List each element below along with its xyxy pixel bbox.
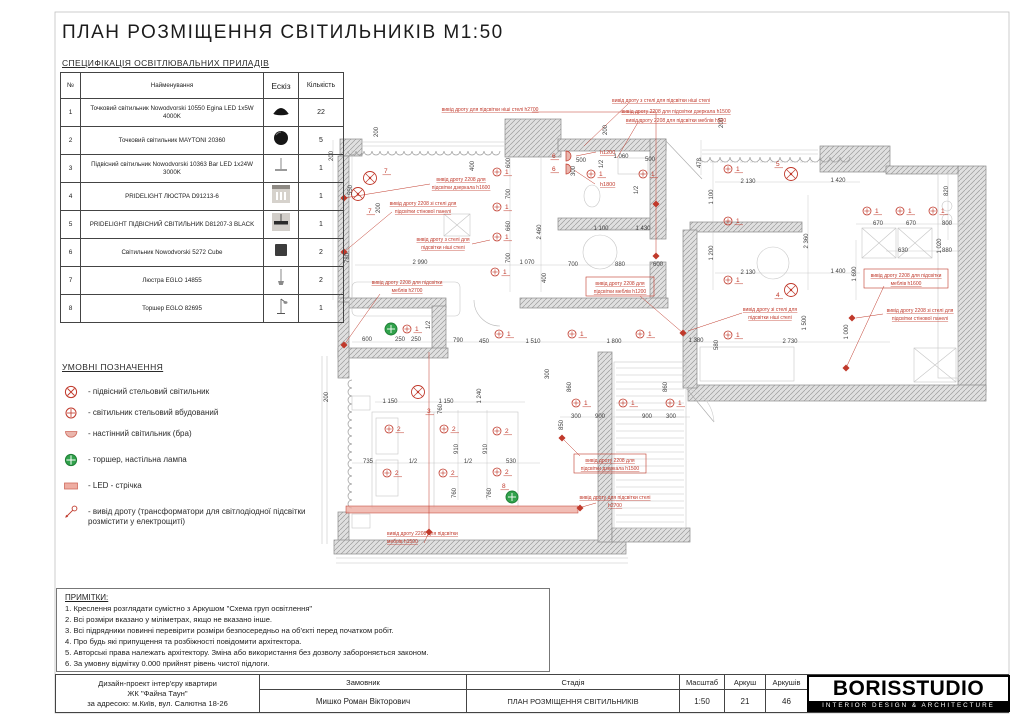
spec-row: 8Торшер EGLO 826951	[61, 295, 344, 323]
svg-text:вивід дроту з стелі для підсві: вивід дроту з стелі для підсвітки ніші с…	[612, 98, 710, 104]
svg-text:760: 760	[487, 487, 493, 498]
svg-text:2 360: 2 360	[804, 233, 810, 249]
svg-text:8: 8	[502, 483, 506, 490]
svg-text:2: 2	[452, 426, 456, 433]
recessed-spot-symbol: 1	[896, 207, 915, 215]
svg-text:1/2: 1/2	[599, 159, 605, 168]
spec-row: 7Люстра EGLO 148552	[61, 267, 344, 295]
svg-text:300: 300	[571, 165, 577, 176]
svg-text:2: 2	[397, 426, 401, 433]
svg-text:вивід дроту для підсвітки ніші: вивід дроту для підсвітки ніші стелі h27…	[442, 107, 539, 113]
notes-box: ПРИМІТКИ: 1. Креслення розглядати суміст…	[56, 588, 550, 672]
spec-table-body: 1Точковий світильник Nowodvorski 10550 E…	[61, 99, 344, 323]
svg-text:1 100: 1 100	[593, 226, 609, 232]
legend: УМОВНІ ПОЗНАЧЕННЯ - підвісний стельовий …	[62, 362, 312, 372]
svg-text:1: 1	[631, 400, 635, 407]
svg-text:660: 660	[506, 220, 512, 231]
spec-table: №НайменуванняЕскізКількість 1Точковий св…	[60, 72, 344, 323]
svg-text:300: 300	[571, 414, 582, 420]
svg-text:1: 1	[648, 331, 652, 338]
svg-text:1 420: 1 420	[830, 178, 846, 184]
spec-row-num: 1	[61, 99, 81, 127]
recessed-spot-symbol: 1	[403, 325, 422, 333]
recessed-spot-symbol: 2	[493, 427, 512, 435]
spec-row-name: PRIDELIGHT ЛЮСТРА D91213-6	[81, 183, 264, 211]
svg-text:850: 850	[559, 419, 565, 430]
recessed-spot-symbol: 1	[724, 165, 743, 173]
project-line: Дизайн-проект інтер'єру квартири	[98, 679, 217, 689]
spec-row: 3Підвісний світильник Nowodvorski 10363 …	[61, 155, 344, 183]
svg-text:1: 1	[415, 326, 419, 333]
svg-text:2: 2	[505, 469, 509, 476]
svg-text:1/2: 1/2	[464, 459, 473, 465]
legend-item-label: - настінний світильник (бра)	[80, 426, 192, 439]
svg-text:h1200: h1200	[600, 150, 615, 156]
svg-text:250: 250	[411, 337, 422, 343]
svg-text:вивід дроту зі стелі для: вивід дроту зі стелі для	[743, 307, 798, 313]
project-line: ЖК "Файна Таун"	[127, 689, 187, 699]
svg-text:1 100: 1 100	[709, 189, 715, 205]
spec-row-name: Точковий світильник MAYTONI 20360	[81, 127, 264, 155]
floor-lamp-sketch-icon	[264, 295, 299, 323]
svg-text:7: 7	[384, 168, 388, 175]
legend-item-label: - світильник стельовий вбудований	[80, 405, 218, 418]
svg-text:1: 1	[678, 400, 682, 407]
recessed-spot-symbol: 1	[572, 399, 591, 407]
svg-text:підсвітки стінової панелі: підсвітки стінової панелі	[892, 316, 948, 322]
spec-col-header: №	[61, 73, 81, 99]
spec-row-qty: 1	[299, 183, 344, 211]
recessed-spot-symbol: 1	[493, 233, 512, 241]
spec-table-header: №НайменуванняЕскізКількість	[61, 73, 344, 99]
svg-text:1 430: 1 430	[635, 226, 651, 232]
recessed-spot-symbol: 2	[493, 468, 512, 476]
spec-row: 6Світильник Nowodvorski 5272 Cube2	[61, 239, 344, 267]
svg-text:підсвітки дзеркала h1600: підсвітки дзеркала h1600	[432, 185, 491, 191]
svg-text:600: 600	[653, 262, 664, 268]
logo-name: BORISSTUDIO	[809, 677, 1008, 701]
svg-text:200: 200	[603, 124, 609, 135]
recessed-spot-symbol: 2	[383, 469, 402, 477]
svg-text:200: 200	[324, 391, 330, 402]
svg-text:900: 900	[595, 414, 606, 420]
spec-row-num: 5	[61, 211, 81, 239]
svg-text:580: 580	[714, 339, 720, 350]
svg-text:1: 1	[736, 218, 740, 225]
svg-text:1 060: 1 060	[613, 154, 629, 160]
spec-row-qty: 5	[299, 127, 344, 155]
svg-text:700: 700	[506, 188, 512, 199]
svg-text:1/2: 1/2	[409, 459, 418, 465]
svg-text:меблів h2700: меблів h2700	[392, 288, 423, 294]
spec-row-name: Підвісний світильник Nowodvorski 10363 B…	[81, 155, 264, 183]
legend-item: - LED - стрічка	[62, 478, 312, 494]
svg-text:1: 1	[736, 277, 740, 284]
recessed-spot-symbol: 1	[568, 330, 587, 338]
pendant-light-symbol: 4	[775, 284, 798, 300]
pendant-light-symbol: 7	[364, 168, 392, 185]
cube-sketch-icon	[264, 239, 299, 267]
recessed-spot-symbol: 1	[495, 330, 514, 338]
spec-heading: СПЕЦИФІКАЦІЯ ОСВІТЛЮВАЛЬНИХ ПРИЛАДІВ	[62, 58, 269, 68]
svg-text:1 800: 1 800	[606, 339, 622, 345]
svg-text:1 240: 1 240	[477, 388, 483, 404]
spec-row-num: 4	[61, 183, 81, 211]
legend-item-label: - торшер, настільна лампа	[80, 452, 187, 465]
scale-cell: Масштаб 1:50	[679, 675, 724, 712]
project-info: Дизайн-проект інтер'єру квартириЖК "Файн…	[56, 675, 259, 712]
note-line: 2. Всі розміри вказано у міліметрах, якщ…	[65, 615, 272, 624]
svg-text:1 400: 1 400	[830, 269, 846, 275]
spec-row: 1Точковий світильник Nowodvorski 10550 E…	[61, 99, 344, 127]
spec-row-num: 2	[61, 127, 81, 155]
svg-text:910: 910	[454, 443, 460, 454]
svg-text:450: 450	[479, 339, 490, 345]
svg-text:вивід дроту 2208 для підсвітки: вивід дроту 2208 для підсвітки	[372, 280, 443, 286]
svg-text:670: 670	[906, 221, 917, 227]
note-line: 1. Креслення розглядати сумістно з Аркуш…	[65, 604, 312, 613]
legend-heading: УМОВНІ ПОЗНАЧЕННЯ	[62, 362, 312, 372]
spec-row-name: PRIDELIGHT ПІДВІСНИЙ СВІТИЛЬНИК D81207-3…	[81, 211, 264, 239]
svg-text:h2700: h2700	[608, 503, 622, 509]
svg-text:вивід дроту для підсвітки стел: вивід дроту для підсвітки стелі	[579, 495, 650, 501]
spec-row-qty: 2	[299, 239, 344, 267]
svg-text:1: 1	[507, 331, 511, 338]
stage-value: ПЛАН РОЗМІЩЕННЯ СВІТИЛЬНИКІВ	[467, 690, 679, 712]
legend-item-label: - LED - стрічка	[80, 478, 142, 491]
svg-text:вивід дроту 2208 для підсвітки: вивід дроту 2208 для підсвітки	[871, 273, 942, 279]
svg-text:1: 1	[503, 269, 507, 276]
svg-text:7: 7	[368, 208, 372, 215]
svg-text:підсвітки ніші стелі: підсвітки ніші стелі	[421, 245, 464, 251]
svg-text:600: 600	[506, 157, 512, 168]
spot-black-sketch-icon	[264, 99, 299, 127]
svg-text:вивід дроту 2208 зі стелі для: вивід дроту 2208 зі стелі для	[887, 308, 954, 314]
svg-text:700: 700	[568, 262, 579, 268]
pendant-black-sketch-icon	[264, 211, 299, 239]
svg-text:5: 5	[776, 161, 780, 168]
spec-row-qty: 22	[299, 99, 344, 127]
note-line: 5. Авторські права належать архітектору.…	[65, 648, 429, 657]
legend-item: - торшер, настільна лампа	[62, 452, 312, 468]
svg-text:1: 1	[505, 234, 509, 241]
svg-text:1 510: 1 510	[525, 339, 541, 345]
pendant-light-symbol: 3	[412, 386, 435, 416]
note-line: 3. Всі підрядники повинні перевірити роз…	[65, 626, 394, 635]
legend-item-label: - підвісний стельовий світильник	[80, 384, 209, 397]
spec-col-header: Кількість	[299, 73, 344, 99]
stage-label: Стадія	[467, 675, 679, 690]
svg-text:2: 2	[505, 428, 509, 435]
customer-cell: Замовник Мишко Роман Вікторович	[259, 675, 466, 712]
svg-text:860: 860	[567, 381, 573, 392]
title-block: Дизайн-проект інтер'єру квартириЖК "Файн…	[55, 674, 1009, 713]
torcher-icon	[62, 452, 80, 468]
svg-text:880: 880	[615, 262, 626, 268]
svg-text:1: 1	[584, 400, 588, 407]
svg-text:2 730: 2 730	[782, 339, 798, 345]
svg-text:h1800: h1800	[600, 182, 615, 188]
wire-icon	[62, 504, 80, 520]
svg-text:2 130: 2 130	[740, 179, 756, 185]
svg-text:4: 4	[776, 292, 780, 299]
svg-text:1: 1	[505, 169, 509, 176]
spec-row-qty: 2	[299, 267, 344, 295]
chandelier-sketch-icon	[264, 183, 299, 211]
svg-text:550: 550	[348, 184, 354, 195]
svg-text:меблів h1600: меблів h1600	[891, 281, 922, 287]
spec-row-name: Світильник Nowodvorski 5272 Cube	[81, 239, 264, 267]
spec-row-num: 7	[61, 267, 81, 295]
spec-row-name: Точковий світильник Nowodvorski 10550 Eg…	[81, 99, 264, 127]
legend-item-label: - вивід дроту (трансформатори для світло…	[80, 504, 312, 527]
svg-text:1: 1	[908, 208, 912, 215]
project-line: за адресою: м.Київ, вул. Салютна 18-26	[87, 699, 228, 709]
sheet-label: Аркуш	[725, 675, 765, 690]
svg-text:вивід дроту 2208 зі стелі для: вивід дроту 2208 зі стелі для	[390, 201, 457, 207]
svg-text:підсвітки меблів h1200: підсвітки меблів h1200	[594, 289, 647, 295]
notes-heading: ПРИМІТКИ:	[65, 593, 108, 602]
studio-logo: BORISSTUDIO INTERIOR DESIGN & ARCHITECTU…	[807, 675, 1010, 712]
spec-row: 2Точковий світильник MAYTONI 203605	[61, 127, 344, 155]
svg-text:780: 780	[345, 252, 351, 263]
scale-label: Масштаб	[680, 675, 724, 690]
svg-text:910: 910	[483, 443, 489, 454]
dimension-lines	[333, 140, 965, 500]
recessed-spot-symbol: 1	[587, 170, 606, 178]
recessed-spot-symbol: 1	[724, 331, 743, 339]
recessed-spot-symbol: 2	[439, 469, 458, 477]
svg-text:вивід дроту 2208 для підсвітки: вивід дроту 2208 для підсвітки дзеркала …	[621, 109, 730, 115]
svg-text:630: 630	[898, 248, 909, 254]
svg-text:підсвітки ніші стелі: підсвітки ніші стелі	[748, 315, 791, 321]
svg-text:860: 860	[663, 381, 669, 392]
svg-text:300: 300	[545, 368, 551, 379]
sheets-cell: Аркушів 46	[765, 675, 807, 712]
spec-col-header: Найменування	[81, 73, 264, 99]
wall-bra-symbol: 6	[551, 164, 572, 174]
spec-row-num: 3	[61, 155, 81, 183]
led-strip	[346, 506, 578, 513]
note-line: 6. За умовну відмітку 0.000 прийнят ріве…	[65, 659, 270, 668]
svg-text:1 000: 1 000	[844, 324, 850, 340]
svg-text:вивід дроту 2208 для підсвітки: вивід дроту 2208 для підсвітки	[387, 531, 458, 537]
bra-icon	[62, 426, 80, 442]
svg-text:200: 200	[374, 126, 380, 137]
svg-text:1/2: 1/2	[426, 320, 432, 329]
hanging-sketch-icon	[264, 267, 299, 295]
svg-text:735: 735	[363, 459, 374, 465]
svg-text:2 460: 2 460	[537, 224, 543, 240]
svg-text:300: 300	[666, 414, 677, 420]
svg-text:вивід дроту 2208 для: вивід дроту 2208 для	[595, 281, 644, 287]
svg-text:1: 1	[736, 166, 740, 173]
svg-text:1 150: 1 150	[382, 399, 398, 405]
recessed-spot-symbol: 2	[440, 425, 459, 433]
svg-text:820: 820	[944, 185, 950, 196]
spec-row: 5PRIDELIGHT ПІДВІСНИЙ СВІТИЛЬНИК D81207-…	[61, 211, 344, 239]
legend-item: - вивід дроту (трансформатори для світло…	[62, 504, 312, 527]
bar-pendant-sketch-icon	[264, 155, 299, 183]
sheets-value: 46	[766, 690, 807, 712]
svg-text:підсвітки стінової панелі: підсвітки стінової панелі	[395, 209, 451, 215]
svg-text:880: 880	[942, 248, 953, 254]
note-line: 4. Про будь які припущення та розбіжност…	[65, 637, 302, 646]
recessed-spot-symbol: 1	[863, 207, 882, 215]
recessed-spot-symbol: 2	[385, 425, 404, 433]
svg-text:1: 1	[651, 171, 655, 178]
svg-text:500: 500	[576, 158, 587, 164]
svg-text:6: 6	[552, 166, 556, 173]
svg-text:2: 2	[395, 470, 399, 477]
svg-text:760: 760	[452, 487, 458, 498]
svg-text:900: 900	[642, 414, 653, 420]
svg-text:2 130: 2 130	[740, 270, 756, 276]
logo-tagline: INTERIOR DESIGN & ARCHITECTURE	[809, 701, 1008, 710]
led-icon	[62, 478, 80, 494]
svg-text:1: 1	[505, 204, 509, 211]
spec-row-name: Люстра EGLO 14855	[81, 267, 264, 295]
svg-text:1: 1	[580, 331, 584, 338]
recessed-spot-symbol: 1	[636, 330, 655, 338]
svg-text:478: 478	[697, 157, 703, 168]
svg-text:400: 400	[542, 272, 548, 283]
svg-text:530: 530	[506, 459, 517, 465]
svg-text:1 690: 1 690	[852, 266, 858, 282]
svg-text:2 990: 2 990	[412, 260, 428, 266]
page-title: ПЛАН РОЗМІЩЕННЯ СВІТИЛЬНИКІВ М1:50	[62, 22, 504, 44]
spot-round-sketch-icon	[264, 127, 299, 155]
sheets-label: Аркушів	[766, 675, 807, 690]
spec-row-num: 8	[61, 295, 81, 323]
svg-text:1: 1	[599, 171, 603, 178]
svg-text:790: 790	[453, 338, 464, 344]
spec-row: 4PRIDELIGHT ЛЮСТРА D91213-61	[61, 183, 344, 211]
svg-text:200: 200	[376, 202, 382, 213]
pendant-icon	[62, 384, 80, 400]
svg-text:1: 1	[875, 208, 879, 215]
svg-text:вивід дроту 2208 для: вивід дроту 2208 для	[585, 458, 634, 464]
spec-col-header: Ескіз	[264, 73, 299, 99]
svg-text:3: 3	[427, 408, 431, 415]
recessed-spot-symbol: 1	[491, 268, 510, 276]
drawing-sheet: 7754311111111111111111111222222668200200…	[0, 0, 1024, 724]
svg-text:250: 250	[395, 337, 406, 343]
svg-text:400: 400	[470, 160, 476, 171]
svg-text:700: 700	[506, 252, 512, 263]
svg-text:вивід дроту 2208 для підсвітки: вивід дроту 2208 для підсвітки меблів h5…	[626, 118, 726, 124]
svg-text:1 380: 1 380	[688, 338, 704, 344]
pendant-light-symbol: 7	[352, 188, 376, 216]
legend-item: - настінний світильник (бра)	[62, 426, 312, 442]
pendant-light-symbol: 5	[775, 161, 798, 181]
torcher-symbol: 8	[501, 483, 519, 503]
stage-cell: Стадія ПЛАН РОЗМІЩЕННЯ СВІТИЛЬНИКІВ	[466, 675, 679, 712]
sheet-value: 21	[725, 690, 765, 712]
svg-text:1: 1	[941, 208, 945, 215]
spec-row-qty: 1	[299, 211, 344, 239]
recessed-spot-symbol: 1	[724, 276, 743, 284]
svg-text:1 500: 1 500	[802, 315, 808, 331]
customer-label: Замовник	[260, 675, 466, 690]
recessed-spot-symbol: 1	[493, 203, 512, 211]
svg-text:6: 6	[552, 153, 556, 160]
recessed-spot-symbol: 1	[929, 207, 948, 215]
svg-text:670: 670	[873, 221, 884, 227]
sheet-cell: Аркуш 21	[724, 675, 765, 712]
svg-text:800: 800	[942, 221, 953, 227]
svg-text:600: 600	[362, 337, 373, 343]
spec-row-name: Торшер EGLO 82695	[81, 295, 264, 323]
torcher-symbol	[385, 323, 397, 335]
spec-row-qty: 1	[299, 295, 344, 323]
recessed-spot-symbol: 1	[493, 168, 512, 176]
svg-text:1 200: 1 200	[709, 245, 715, 261]
scale-value: 1:50	[680, 690, 724, 712]
svg-text:760: 760	[438, 403, 444, 414]
svg-text:1 070: 1 070	[519, 260, 535, 266]
recessed-icon	[62, 405, 80, 421]
legend-item: - світильник стельовий вбудований	[62, 405, 312, 421]
svg-text:500: 500	[645, 157, 656, 163]
customer-value: Мишко Роман Вікторович	[260, 690, 466, 712]
svg-text:2: 2	[451, 470, 455, 477]
svg-text:1/2: 1/2	[634, 185, 640, 194]
svg-text:1: 1	[736, 332, 740, 339]
svg-text:вивід дроту з стелі для: вивід дроту з стелі для	[416, 237, 469, 243]
svg-text:підсвітки дзеркала h1500: підсвітки дзеркала h1500	[581, 466, 640, 472]
svg-text:меблів h1500: меблів h1500	[387, 539, 418, 545]
spec-row-num: 6	[61, 239, 81, 267]
svg-text:вивід дроту 2208 для: вивід дроту 2208 для	[436, 177, 485, 183]
legend-item: - підвісний стельовий світильник	[62, 384, 312, 400]
spec-row-qty: 1	[299, 155, 344, 183]
